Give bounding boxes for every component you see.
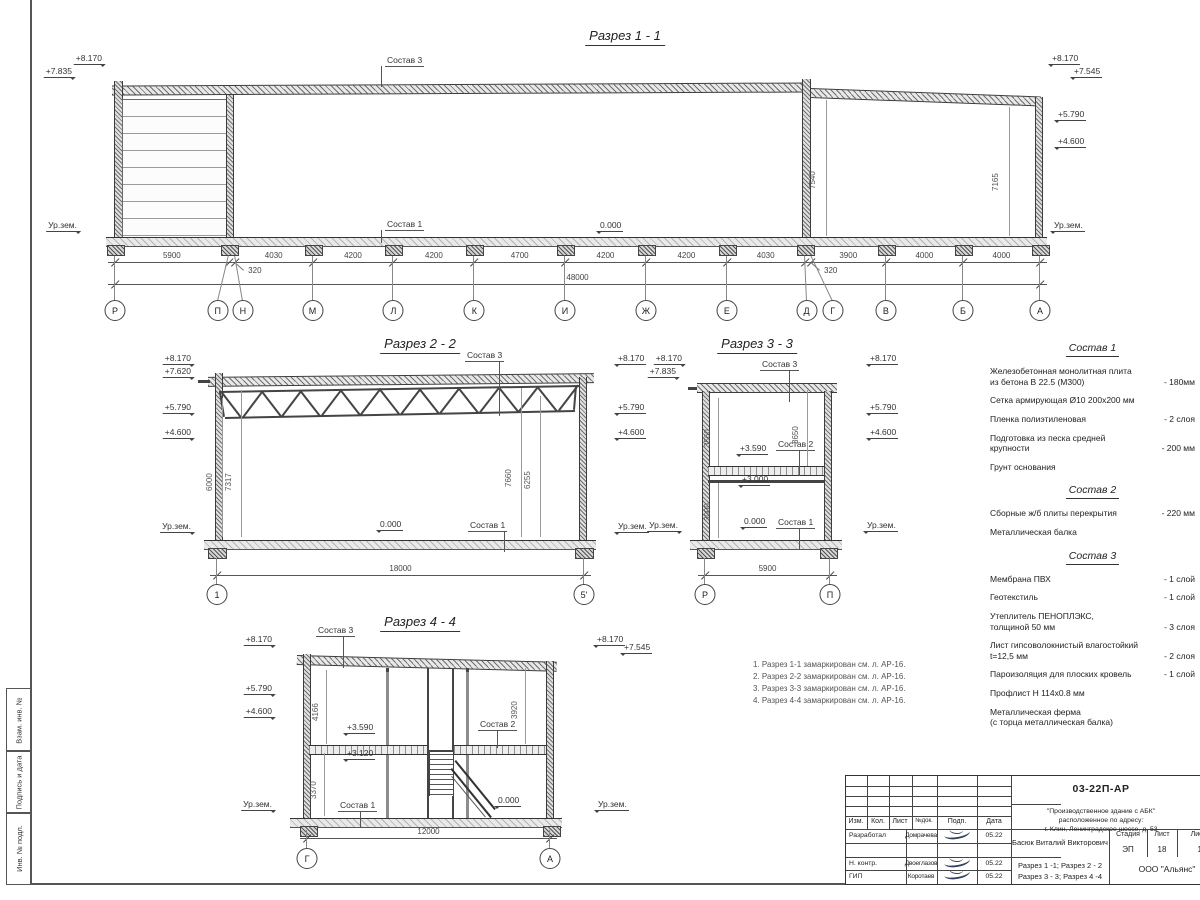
side-stamp-label: Инв. № подл. [15, 825, 24, 872]
vertical-dim: 7165 [991, 173, 1000, 191]
titleblock-line [1109, 829, 1110, 884]
signature [943, 866, 971, 881]
s3-footing-left [697, 548, 715, 559]
titleblock-text: 05.22 [985, 873, 1002, 880]
composition-item: Мембрана ПВХ- 1 слой [990, 574, 1195, 585]
vdim-line [807, 390, 808, 466]
truss-diagonal [379, 388, 400, 414]
s1-roof-right [810, 88, 1041, 106]
composition-title: Состав 2 [990, 484, 1195, 496]
composition-item-text: Сборные ж/б плиты перекрытия [990, 508, 1117, 519]
titleblock-line [846, 796, 1011, 797]
vdim-line [718, 398, 719, 466]
level-mark: +3.590 [345, 723, 375, 734]
level-mark: Ур.зем. [160, 522, 193, 533]
titleblock-text: Лист [892, 818, 907, 825]
composition-item: Лист гипсоволокнистый влагостойкий t=12,… [990, 640, 1195, 661]
level-mark: Ур.зем. [865, 521, 898, 532]
axis-bubble-К: К [464, 300, 485, 321]
composition-item: Сетка армирующая Ø10 200х200 мм [990, 395, 1195, 406]
composition-item-text: Подготовка из песка средней крупности [990, 433, 1105, 454]
vdim-line [324, 753, 325, 816]
vdim-line [540, 396, 541, 537]
titleblock-line [1011, 776, 1012, 884]
dim-value: 5900 [759, 564, 777, 573]
composition-item-text: Сетка армирующая Ø10 200х200 мм [990, 395, 1135, 406]
side-stamp-box: Взам. инв. № [6, 688, 32, 752]
s2-parapet-ledge [198, 380, 210, 383]
level-mark: +4.600 [868, 428, 898, 439]
dim-value: 4200 [344, 251, 362, 260]
composition-item-value: - 1 слой [1158, 574, 1195, 585]
axis-leader [114, 255, 115, 301]
titleblock-text: 05.22 [985, 832, 1002, 839]
axis-bubble-Л: Л [383, 300, 404, 321]
dim-value: 4200 [425, 251, 443, 260]
composition-item: Металлическая ферма (с торца металлическ… [990, 707, 1195, 728]
titleblock-line [937, 776, 938, 884]
axis-bubble-Н: Н [232, 300, 253, 321]
composition-item-value: - 3 слоя [1158, 622, 1195, 633]
truss-diagonal [360, 388, 381, 415]
s3-wall-right [824, 391, 832, 540]
truss-diagonal [400, 388, 421, 415]
composition-item-text: Металлическая ферма (с торца металлическ… [990, 707, 1113, 728]
titleblock-text: Двоеглазов [905, 860, 938, 867]
compositions-panel: Состав 1Железобетонная монолитная плита … [990, 330, 1195, 736]
axis-bubble-М: М [302, 300, 323, 321]
s3-roof [697, 383, 837, 393]
axis-bubble-Д: Д [796, 300, 817, 321]
axis-bubble-Г: Г [822, 300, 843, 321]
truss-diagonal [300, 390, 321, 416]
level-mark: Ур.зем. [1052, 221, 1085, 232]
s1-footing [305, 245, 323, 256]
dim-value: 3900 [839, 251, 857, 260]
vdim-line [718, 483, 719, 538]
axis-leader [645, 255, 646, 301]
titleblock-text: Листов [1191, 831, 1200, 838]
titleblock-text: Стадия [1116, 831, 1140, 838]
axis-bubble-А: А [540, 848, 561, 869]
s1-wall-dg [802, 79, 811, 238]
dim-value: 12000 [417, 827, 439, 836]
truss-diagonal [439, 387, 460, 414]
axis-leader [1039, 255, 1040, 301]
composition-title-text: Состав 3 [1066, 550, 1119, 565]
section-3-3-title: Разрез 3 - 3 [717, 336, 797, 354]
dim-value: 4200 [597, 251, 615, 260]
level-mark: Ур.зем. [241, 800, 274, 811]
composition-item-value: - 1 слой [1158, 592, 1195, 603]
dim-value: 320 [248, 266, 261, 275]
axis-leader [216, 558, 217, 585]
composition-item-value: - 220 мм [1156, 508, 1195, 519]
leader [799, 528, 800, 550]
axis-leader [583, 558, 584, 585]
titleblock-text: 18 [1158, 845, 1167, 854]
level-mark: 0.000 [742, 517, 767, 528]
axis-bubble-А: А [1030, 300, 1051, 321]
level-mark: +8.170 [74, 54, 104, 65]
leader [360, 811, 361, 828]
axis-leader [704, 558, 705, 585]
level-mark: +8.170 [595, 635, 625, 646]
titleblock-text: Басюк Виталий Викторович [1012, 838, 1108, 847]
titleblock-line [846, 870, 1011, 871]
axis-bubble-5': 5' [574, 584, 595, 605]
titleblock-text: Изм. [849, 818, 864, 825]
s1-footing [638, 245, 656, 256]
axis-leader [885, 255, 886, 301]
leader [497, 730, 498, 748]
axis-leader [962, 255, 963, 301]
composition-item: Пароизоляция для плоских кровель- 1 слой [990, 669, 1195, 680]
composition-item-text: Пленка полиэтиленовая [990, 414, 1086, 425]
note-line: 4. Разрез 4-4 замаркирован см. л. АР-16. [753, 695, 906, 707]
level-mark: +5.790 [163, 403, 193, 414]
level-mark: +3.590 [738, 444, 768, 455]
s1-footing [221, 245, 239, 256]
composition-leader-label: Состав 1 [338, 800, 377, 812]
vertical-dim: 4166 [311, 703, 320, 721]
vertical-dim: 3920 [510, 701, 519, 719]
dim-value: 18000 [389, 564, 411, 573]
axis-bubble-Г: Г [297, 848, 318, 869]
drawing-sheet: Разрез 1 - 1 Разрез 2 - 2 Разрез 3 - 3 Р… [0, 0, 1200, 900]
vertical-dim: 6255 [523, 471, 532, 489]
composition-item-value: - 1 слой [1158, 669, 1195, 680]
titleblock-text: Подп. [948, 818, 967, 825]
stair-stringer [451, 768, 492, 818]
axis-bubble-Р: Р [695, 584, 716, 605]
composition-item-value: - 180мм [1158, 377, 1195, 388]
s4-stair-upper-flight [429, 750, 454, 796]
vertical-dim: 3000 [703, 503, 712, 521]
s1-footing [719, 245, 737, 256]
truss-diagonal [479, 386, 500, 412]
leader [789, 370, 790, 402]
composition-item-text: Утеплитель ПЕНОПЛЭКС, толщиной 50 мм [990, 611, 1094, 632]
notes-block: 1. Разрез 1-1 замаркирован см. л. АР-16.… [753, 659, 906, 707]
s1-footing [107, 245, 125, 256]
level-mark: 0.000 [496, 796, 521, 807]
level-mark: +8.170 [163, 354, 193, 365]
axis-bubble-Ж: Ж [635, 300, 656, 321]
axis-bubble-И: И [554, 300, 575, 321]
composition-item: Утеплитель ПЕНОПЛЭКС, толщиной 50 мм- 3 … [990, 611, 1195, 632]
s1-footing [557, 245, 575, 256]
titleblock-line [912, 776, 913, 829]
vdim-line [525, 668, 526, 744]
section-2-2-title: Разрез 2 - 2 [380, 336, 460, 354]
composition-item-text: Геотекстиль [990, 592, 1038, 603]
vertical-dim: 6000 [205, 473, 214, 491]
leader [504, 531, 505, 552]
dim-line [108, 262, 1047, 263]
dim-line [300, 838, 557, 839]
note-line: 2. Разрез 2-2 замаркирован см. л. АР-16. [753, 671, 906, 683]
composition-item-text: Металлическая балка [990, 527, 1077, 538]
s1-wall-pn [226, 95, 234, 238]
titleblock-text: Н. контр. [849, 860, 877, 867]
vdim-line [222, 398, 223, 537]
composition-title-text: Состав 2 [1066, 484, 1119, 499]
s1-wall-right [1035, 97, 1043, 238]
s4-floor-slab-right [454, 745, 546, 755]
titleblock-text: Дата [986, 818, 1002, 825]
stair-rail [455, 760, 496, 810]
section-1-1-title: Разрез 1 - 1 [585, 28, 665, 46]
axis-leader [306, 830, 307, 849]
composition-item-text: Мембрана ПВХ [990, 574, 1051, 585]
side-stamp-label: Подпись и дата [15, 755, 24, 809]
level-mark: +7.545 [622, 643, 652, 654]
composition-item: Металлическая балка [990, 527, 1195, 538]
composition-item: Железобетонная монолитная плита из бетон… [990, 366, 1195, 387]
composition-item-text: Пароизоляция для плоских кровель [990, 669, 1132, 680]
leader [343, 636, 344, 668]
truss-diagonal [339, 389, 360, 415]
stair-landing [427, 750, 454, 752]
dim-value: 4000 [915, 251, 933, 260]
titleblock-line [846, 843, 1011, 844]
side-stamp-box: Инв. № подл. [6, 812, 32, 885]
axis-leader [829, 558, 830, 585]
composition-leader-label: Состав 1 [468, 520, 507, 532]
dim-value: 4000 [993, 251, 1011, 260]
composition-item: Грунт основания [990, 462, 1195, 473]
titleblock-text: ГИП [849, 873, 862, 880]
level-mark: Ур.зем. [647, 521, 680, 532]
titleblock-text: 03-22П-АР [1073, 783, 1130, 795]
level-mark: +3.000 [740, 475, 770, 486]
axis-bubble-Е: Е [716, 300, 737, 321]
vertical-dim: 3370 [309, 781, 318, 799]
s1-floor [106, 237, 1047, 247]
titleblock-text: ООО "Альянс" [1139, 864, 1196, 874]
titleblock-text: Лист [1154, 831, 1169, 838]
titleblock-line [846, 816, 1011, 817]
composition-item-text: Лист гипсоволокнистый влагостойкий t=12,… [990, 640, 1138, 661]
level-mark: +8.170 [244, 635, 274, 646]
note-line: 1. Разрез 1-1 замаркирован см. л. АР-16. [753, 659, 906, 671]
s1-footing [955, 245, 973, 256]
composition-leader-label: Состав 3 [760, 359, 799, 371]
dim-line [108, 284, 1047, 285]
composition-item: Пленка полиэтиленовая- 2 слоя [990, 414, 1195, 425]
titleblock-line [846, 806, 1011, 807]
dim-value: 5900 [163, 251, 181, 260]
level-mark: +5.790 [244, 684, 274, 695]
note-line: 3. Разрез 3-3 замаркирован см. л. АР-16. [753, 683, 906, 695]
composition-item-text: Грунт основания [990, 462, 1056, 473]
truss-diagonal [281, 390, 302, 417]
vertical-dim: 7317 [224, 473, 233, 491]
section-4-4-title: Разрез 4 - 4 [380, 614, 460, 632]
composition-item-text: Профлист Н 114х0.8 мм [990, 688, 1085, 699]
dim-value: 4200 [677, 251, 695, 260]
vdim-line [1009, 107, 1010, 236]
composition-title: Состав 1 [990, 342, 1195, 354]
titleblock-text: Коротаев [908, 873, 934, 880]
dim-value: 320 [824, 266, 837, 275]
side-stamp-box: Подпись и дата [6, 750, 32, 814]
level-mark: +4.600 [163, 428, 193, 439]
axis-bubble-П: П [207, 300, 228, 321]
titleblock-text: Разрез 1 -1; Разрез 2 - 2 Разрез 3 - 3; … [1018, 861, 1102, 882]
titleblock-text: Кол. [871, 818, 885, 825]
level-mark: +7.835 [648, 367, 678, 378]
level-mark: 0.000 [378, 520, 403, 531]
titleblock-text: Домрачева [905, 832, 937, 839]
axis-bubble-1: 1 [207, 584, 228, 605]
side-stamp-label: Взам. инв. № [15, 697, 24, 743]
axis-bubble-В: В [875, 300, 896, 321]
titleblock-line [1011, 857, 1061, 858]
composition-item: Подготовка из песка средней крупности- 2… [990, 433, 1195, 454]
composition-item: Сборные ж/б плиты перекрытия- 220 мм [990, 508, 1195, 519]
titleblock-text: ЭП [1122, 845, 1134, 854]
vdim-line [521, 388, 522, 537]
s2-wall-right [579, 377, 587, 540]
level-mark: +5.790 [616, 403, 646, 414]
vdim-line [326, 670, 327, 744]
s4-wall-right [546, 661, 554, 818]
level-mark: +8.170 [1050, 54, 1080, 65]
titleblock-line [846, 857, 1011, 858]
s1-footing [797, 245, 815, 256]
dim-value: 4700 [511, 251, 529, 260]
titleblock-text: "Производственное здание с АБК" располож… [1039, 807, 1164, 835]
titleblock-line [1177, 829, 1178, 857]
level-mark: +5.790 [868, 403, 898, 414]
axis-leader [312, 255, 313, 301]
composition-leader-label: Состав 3 [385, 55, 424, 67]
s1-footing [1032, 245, 1050, 256]
vertical-dim: 7540 [808, 171, 817, 189]
vertical-dim: 3650 [791, 426, 800, 444]
titleblock-text: Разработал [849, 832, 886, 839]
composition-leader-label: Состав 1 [776, 517, 815, 529]
level-mark: Ур.зем. [616, 522, 649, 533]
title-block: Изм.Кол.Лист№док.Подп.ДатаРазработалДомр… [845, 775, 1200, 885]
truss-diagonal [260, 390, 281, 416]
composition-item: Геотекстиль- 1 слой [990, 592, 1195, 603]
level-mark: +4.600 [1056, 137, 1086, 148]
level-mark: +7.620 [163, 367, 193, 378]
level-mark: +5.790 [1056, 110, 1086, 121]
level-mark: +7.545 [1072, 67, 1102, 78]
level-mark: +3.120 [345, 749, 375, 760]
leader [499, 361, 500, 416]
composition-item-value: - 2 слоя [1158, 651, 1195, 662]
dim-line [210, 575, 591, 576]
s2-footing-right [575, 548, 594, 559]
dim-value: 4030 [265, 251, 283, 260]
composition-item-text: Железобетонная монолитная плита из бетон… [990, 366, 1132, 387]
truss-diagonal [242, 390, 263, 417]
axis-bubble-Б: Б [952, 300, 973, 321]
truss-diagonal [497, 386, 518, 412]
vdim-line [826, 100, 827, 236]
dim-value: 4030 [757, 251, 775, 260]
s1-footing [466, 245, 484, 256]
leader [381, 66, 382, 87]
composition-item: Профлист Н 114х0.8 мм [990, 688, 1195, 699]
s2-floor [204, 540, 596, 550]
level-mark: Ур.зем. [46, 221, 79, 232]
dim-line [698, 575, 837, 576]
titleblock-line [867, 776, 868, 829]
level-mark: +8.170 [616, 354, 646, 365]
composition-leader-label: Состав 1 [385, 219, 424, 231]
truss-diagonal [418, 388, 439, 414]
vertical-dim: 3560 [703, 429, 712, 447]
level-mark: +4.600 [244, 707, 274, 718]
leader [381, 230, 382, 243]
level-mark: +8.170 [654, 354, 684, 365]
titleblock-line [889, 776, 890, 829]
s1-gate-panels [122, 99, 227, 239]
titleblock-text: 05.22 [985, 860, 1002, 867]
level-mark: +8.170 [868, 354, 898, 365]
level-mark: +4.600 [616, 428, 646, 439]
s1-footing [385, 245, 403, 256]
level-mark: +7.835 [44, 67, 74, 78]
level-mark: 0.000 [598, 221, 623, 232]
s1-footing [878, 245, 896, 256]
titleblock-text: №док. [915, 818, 933, 824]
s4-column-upper-1 [386, 668, 389, 745]
axis-leader [549, 830, 550, 849]
vertical-dim: 7660 [504, 469, 513, 487]
truss-diagonal [321, 389, 342, 416]
axis-bubble-П: П [820, 584, 841, 605]
composition-leader-label: Состав 3 [316, 625, 355, 637]
vdim-line [241, 390, 242, 537]
titleblock-line [846, 786, 1011, 787]
s4-column-upper-2 [466, 668, 469, 745]
axis-bubble-Р: Р [105, 300, 126, 321]
s4-column-lower-1 [386, 753, 389, 818]
composition-title-text: Состав 1 [1066, 342, 1119, 357]
titleblock-line [1011, 804, 1061, 805]
titleblock-line [977, 776, 978, 884]
axis-leader [564, 255, 565, 301]
s1-roof-left [112, 82, 811, 95]
truss-diagonal [458, 387, 479, 413]
leader [799, 450, 800, 476]
s2-footing-left [208, 548, 227, 559]
composition-title: Состав 3 [990, 550, 1195, 562]
level-mark: Ур.зем. [596, 800, 629, 811]
axis-leader [726, 255, 727, 301]
dim-value: 48000 [566, 273, 588, 282]
composition-item-value: - 200 мм [1156, 443, 1195, 454]
composition-item-value: - 2 слоя [1158, 414, 1195, 425]
